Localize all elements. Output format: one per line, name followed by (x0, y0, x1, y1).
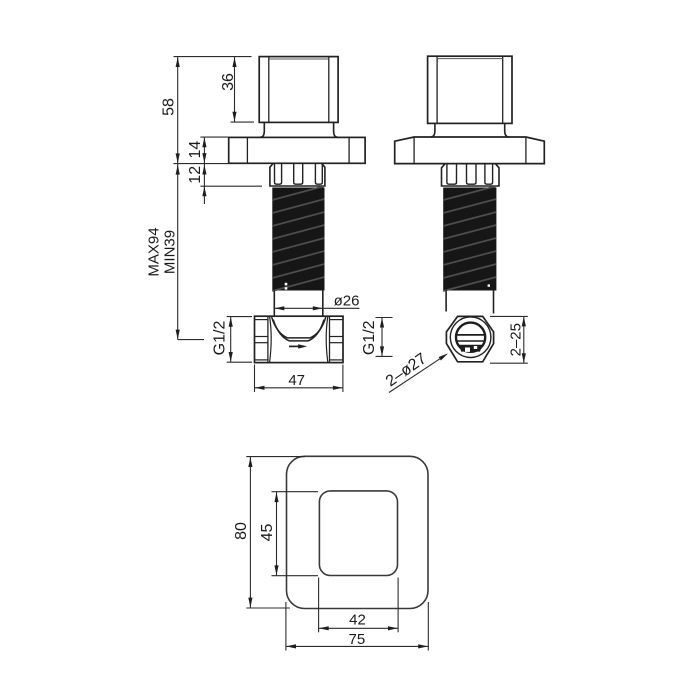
svg-text:80: 80 (233, 522, 250, 540)
svg-text:75: 75 (349, 631, 366, 648)
svg-text:47: 47 (288, 372, 305, 389)
svg-text:MAX94: MAX94 (145, 227, 162, 276)
svg-text:ø26: ø26 (334, 293, 360, 310)
svg-text:14: 14 (187, 141, 204, 159)
svg-text:42: 42 (349, 612, 366, 629)
svg-text:G1/2: G1/2 (361, 320, 378, 355)
svg-text:2–25: 2–25 (507, 323, 524, 356)
svg-text:36: 36 (220, 73, 237, 91)
svg-text:58: 58 (161, 98, 178, 116)
svg-text:MIN39: MIN39 (161, 230, 178, 274)
svg-text:G1/2: G1/2 (212, 321, 229, 356)
svg-text:12: 12 (187, 166, 204, 184)
svg-text:45: 45 (259, 524, 276, 542)
